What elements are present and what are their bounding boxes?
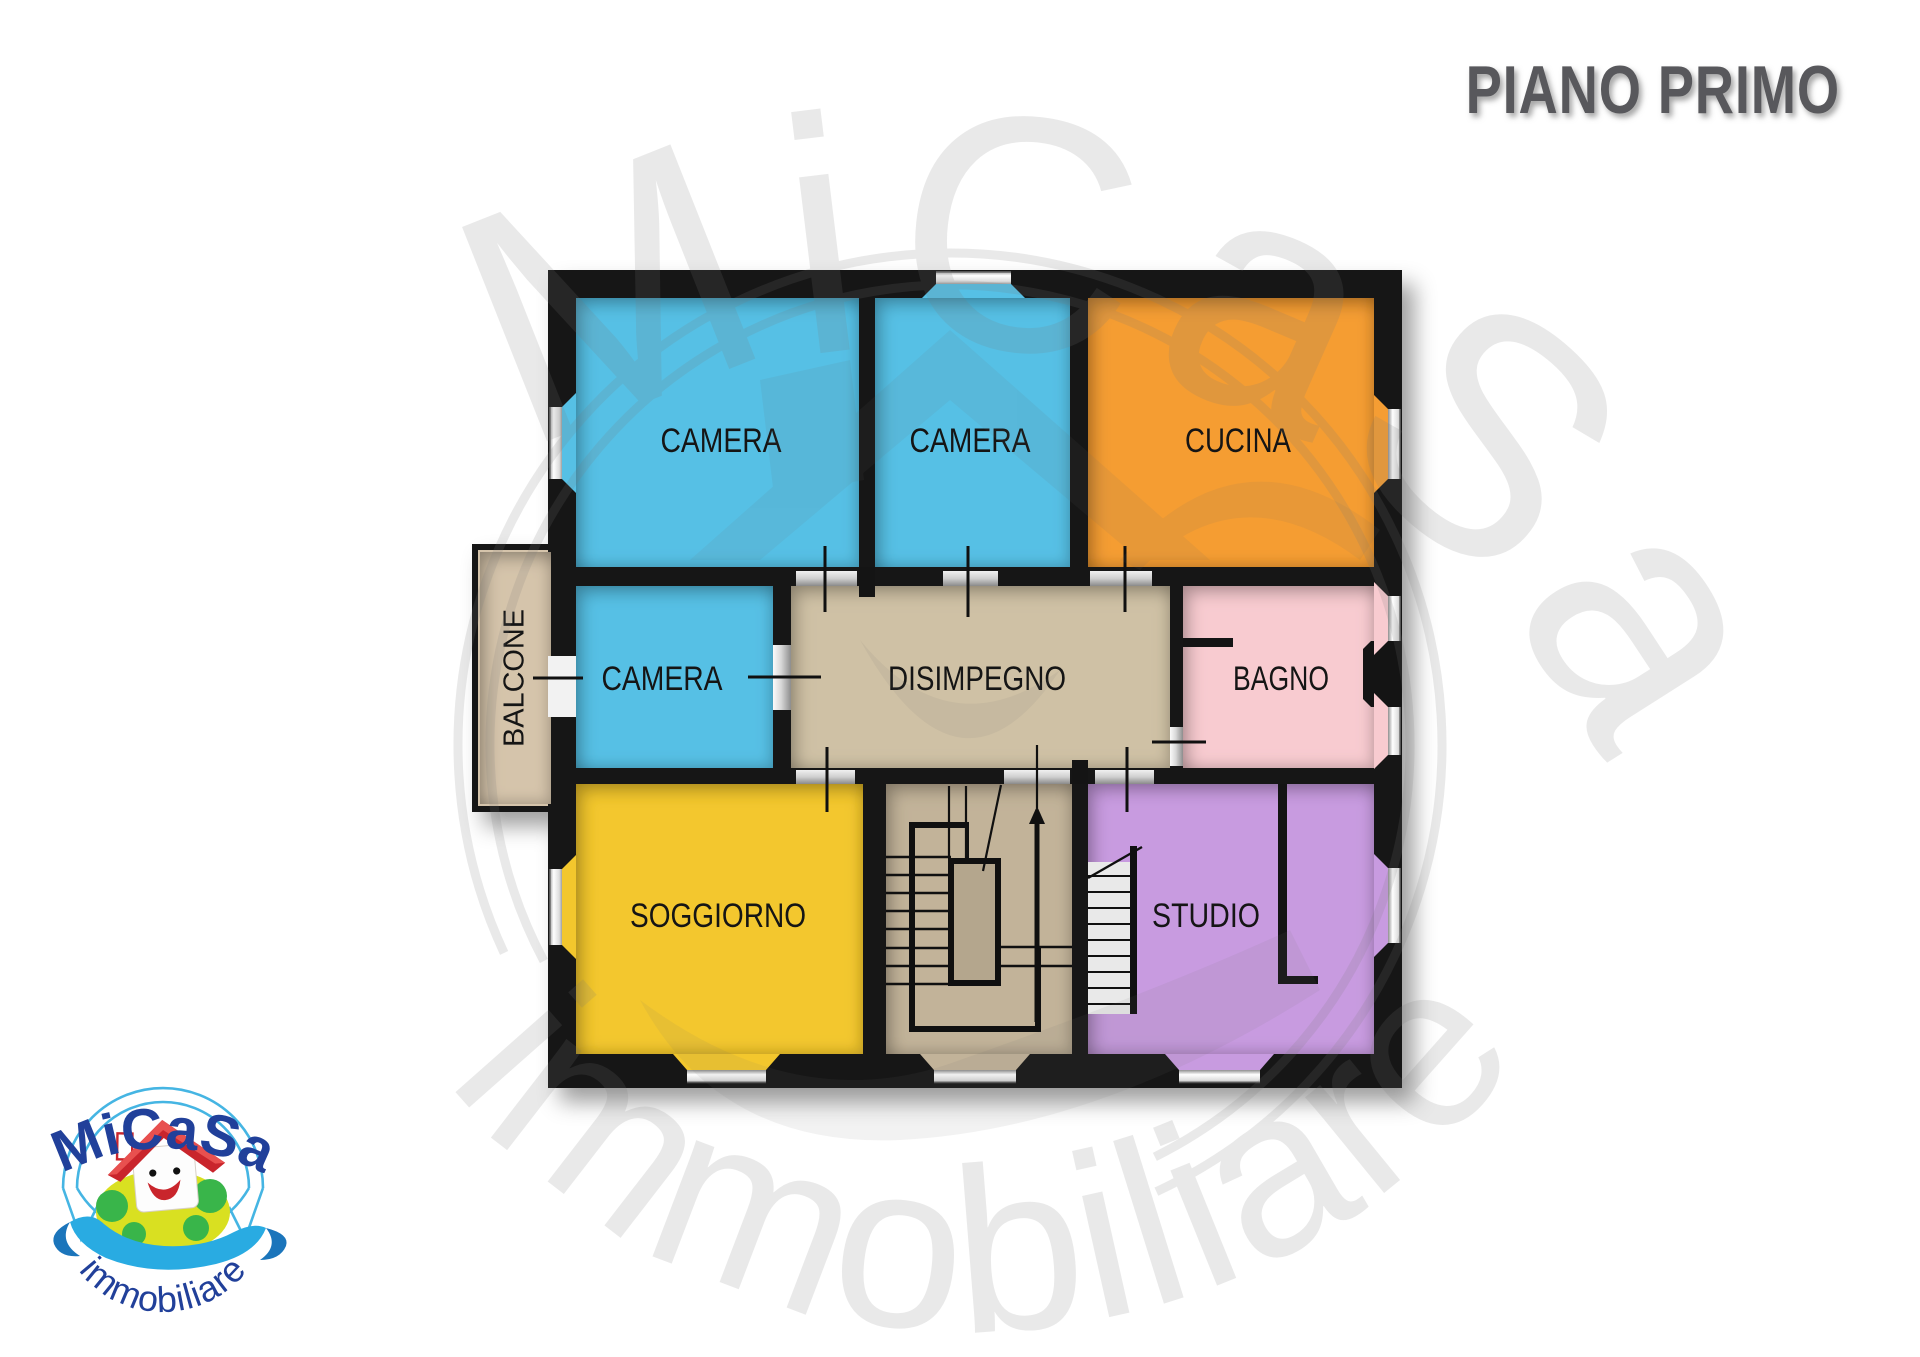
- svg-text:BAGNO: BAGNO: [1233, 660, 1329, 698]
- svg-text:PIANO PRIMO: PIANO PRIMO: [1466, 52, 1840, 128]
- svg-text:STUDIO: STUDIO: [1152, 897, 1260, 935]
- svg-text:SOGGIORNO: SOGGIORNO: [630, 897, 806, 935]
- svg-text:CAMERA: CAMERA: [602, 660, 723, 698]
